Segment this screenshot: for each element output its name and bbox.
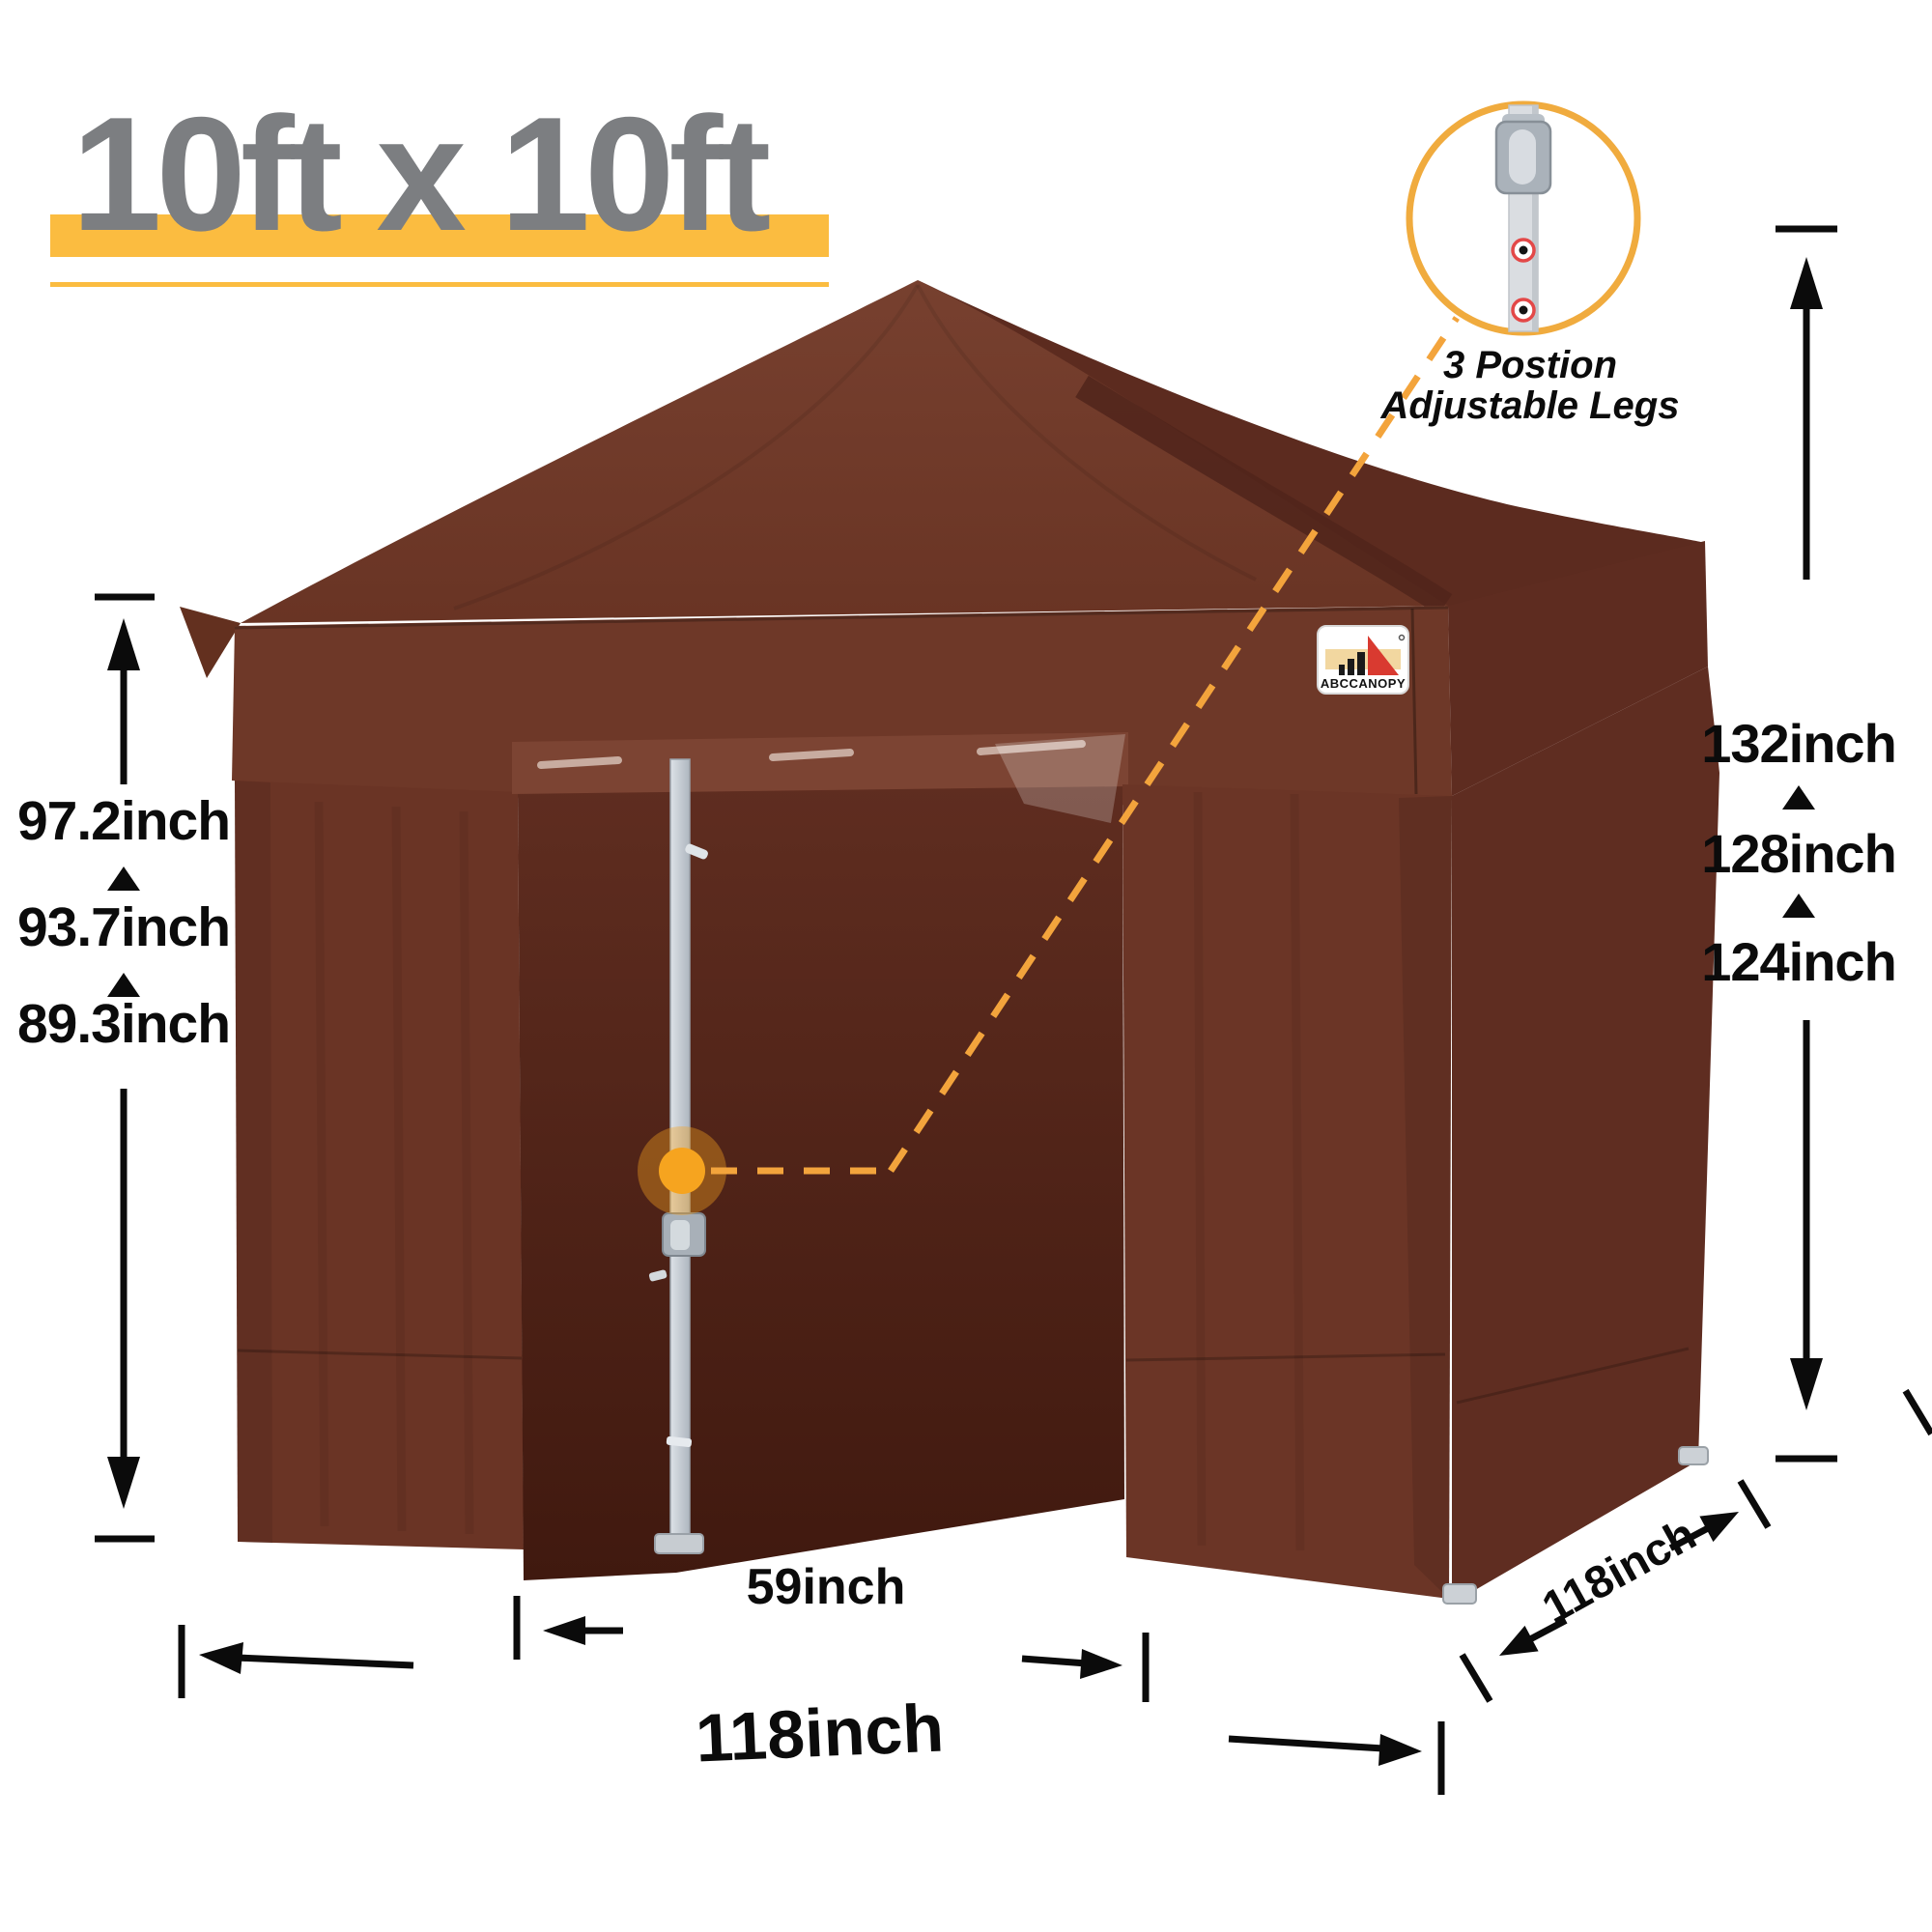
left-eave-flap [180,607,241,678]
position-dot [659,1148,705,1194]
callout-circle [1409,104,1637,332]
right-height-label-1: 132inch [1663,715,1932,773]
door-width-label: 59inch [676,1561,976,1613]
front-corner-foot [1443,1584,1476,1604]
brand-logo-patch: ABCCANOPY [1318,626,1408,694]
rear-corner-foot [1679,1447,1708,1464]
logo-brand-text: ABCCANOPY [1321,676,1406,691]
canopy-size-infographic: ABCCANOPY [0,0,1932,1932]
logo-bar-icon [1357,652,1365,675]
left-height-label-1: 97.2inch [8,792,240,850]
door-opening [518,784,1124,1580]
tent-illustration: ABCCANOPY [0,0,1932,1932]
size-title: 10ft x 10ft [71,93,765,255]
right-height-label-3: 124inch [1663,933,1932,991]
adjustment-hole [1513,240,1534,261]
up-triangle-icon [107,867,140,891]
callout-line-1: 3 Postion [1337,346,1723,384]
up-triangle-icon [1782,785,1815,810]
wall-edge-shade [235,781,272,1544]
up-triangle-icon [1782,894,1815,918]
left-height-label-3: 89.3inch [8,995,240,1053]
tent-canopy: ABCCANOPY [180,280,1719,1604]
right-height-label-2: 128inch [1663,825,1932,883]
logo-bar-icon [1348,659,1354,675]
adjustment-hole [1513,299,1534,321]
pole-foot [655,1534,703,1553]
left-height-label-2: 93.7inch [8,898,240,956]
title-underline [50,282,829,287]
logo-bar-icon [1339,665,1345,675]
callout-line-2: Adjustable Legs [1337,386,1723,425]
left-front-wall [235,781,524,1549]
left-height-dimension [95,597,155,1539]
clamp-button [670,1220,690,1250]
clamp-lever [1509,129,1536,185]
